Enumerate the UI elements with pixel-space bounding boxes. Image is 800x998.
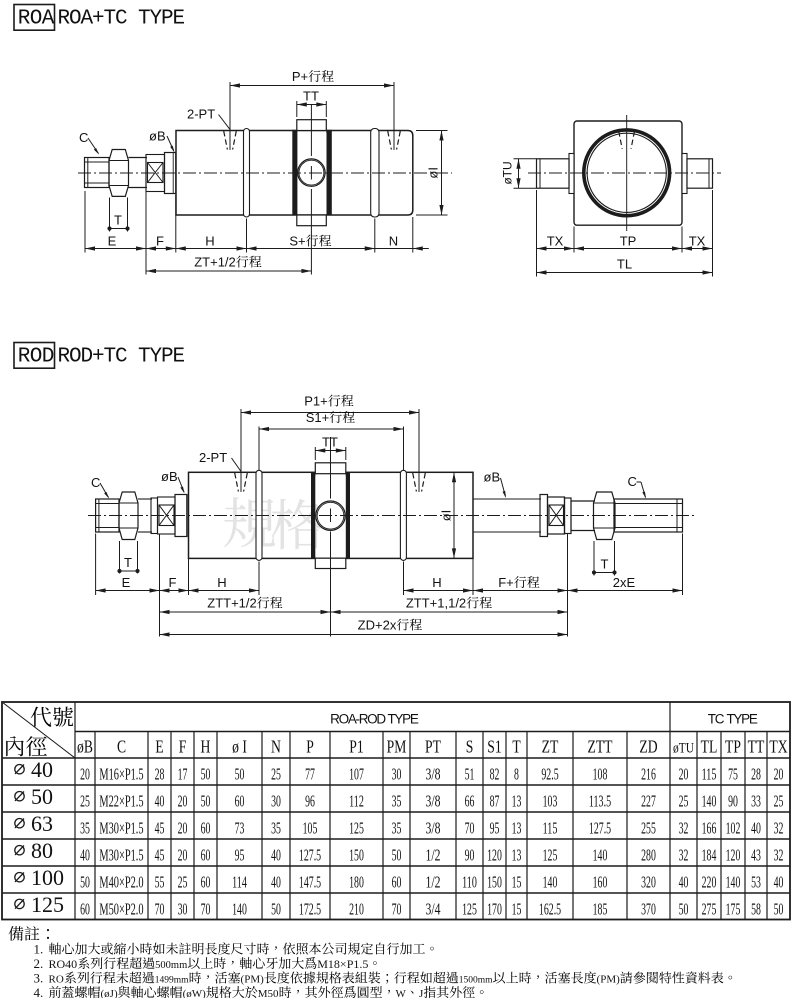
svg-text:40: 40 <box>751 819 761 838</box>
svg-text:TL: TL <box>617 257 632 272</box>
svg-text:172.5: 172.5 <box>299 899 321 918</box>
svg-text:E: E <box>108 234 117 249</box>
svg-text:82: 82 <box>490 765 500 784</box>
svg-text:øB: øB <box>484 470 501 485</box>
svg-text:35: 35 <box>392 819 402 838</box>
svg-text:90: 90 <box>728 792 738 811</box>
svg-text:35: 35 <box>271 819 281 838</box>
svg-text:210: 210 <box>349 899 364 918</box>
svg-text:I: I <box>439 510 454 514</box>
svg-text:103: 103 <box>543 792 558 811</box>
svg-text:140: 140 <box>232 899 247 918</box>
svg-text:ROD+TC TYPE: ROD+TC TYPE <box>58 345 185 368</box>
svg-text:73: 73 <box>235 819 245 838</box>
svg-text:PM: PM <box>387 736 407 756</box>
svg-text:50: 50 <box>235 765 245 784</box>
svg-text:33: 33 <box>751 792 761 811</box>
svg-text:TYPE: TYPE <box>387 712 418 727</box>
svg-text:320: 320 <box>641 873 656 892</box>
svg-text:113.5: 113.5 <box>589 792 611 811</box>
svg-text:TT: TT <box>748 736 765 756</box>
svg-text:C: C <box>117 736 126 756</box>
svg-text:ZTT: ZTT <box>588 736 613 756</box>
svg-text:N: N <box>271 736 281 756</box>
svg-text:P1: P1 <box>349 736 363 756</box>
svg-text:(øJ): (øJ) <box>101 988 118 998</box>
svg-text:370: 370 <box>641 899 656 918</box>
svg-text:TP: TP <box>725 736 741 756</box>
svg-text:H: H <box>205 234 214 249</box>
svg-text:T: T <box>124 555 132 570</box>
svg-text:M50: M50 <box>258 988 279 998</box>
svg-text:25: 25 <box>271 765 281 784</box>
svg-text:ZT: ZT <box>542 736 559 756</box>
svg-text:T: T <box>512 736 521 756</box>
svg-text:90: 90 <box>465 846 475 865</box>
svg-text:I: I <box>426 167 441 171</box>
svg-text:102: 102 <box>726 819 741 838</box>
svg-text:20: 20 <box>774 765 784 784</box>
svg-text:TL: TL <box>701 736 718 756</box>
svg-text:120: 120 <box>726 846 741 865</box>
svg-text:25: 25 <box>178 873 188 892</box>
svg-text:160: 160 <box>593 873 608 892</box>
svg-text:127.5: 127.5 <box>589 819 611 838</box>
svg-text:30: 30 <box>178 899 188 918</box>
svg-text:125: 125 <box>543 846 558 865</box>
svg-text:C: C <box>79 130 88 145</box>
svg-text:M30×P1.5: M30×P1.5 <box>99 819 143 838</box>
svg-text:80: 80 <box>31 838 53 863</box>
svg-text:112: 112 <box>349 792 364 811</box>
svg-text:107: 107 <box>349 765 364 784</box>
svg-text:30: 30 <box>392 765 402 784</box>
svg-text:H: H <box>217 575 226 590</box>
svg-text:60: 60 <box>80 899 90 918</box>
svg-text:TP: TP <box>620 234 637 249</box>
svg-text:70: 70 <box>155 899 165 918</box>
svg-text:66: 66 <box>465 792 475 811</box>
svg-text:2xE: 2xE <box>613 575 636 590</box>
svg-text:øB: øB <box>77 736 93 756</box>
svg-text:ZT+1/2: ZT+1/2 <box>194 255 236 270</box>
svg-text:20: 20 <box>178 846 188 865</box>
svg-text:ø I: ø I <box>232 736 247 756</box>
svg-text:ZTT+1/2: ZTT+1/2 <box>207 596 257 611</box>
svg-text:147.5: 147.5 <box>299 873 321 892</box>
svg-text:13: 13 <box>512 846 522 865</box>
svg-text:F: F <box>156 234 164 249</box>
svg-text:45: 45 <box>155 819 165 838</box>
svg-text:15: 15 <box>512 899 522 918</box>
svg-text:255: 255 <box>641 819 656 838</box>
svg-text:32: 32 <box>774 819 784 838</box>
svg-text:115: 115 <box>543 819 558 838</box>
svg-text:1/2: 1/2 <box>426 846 441 865</box>
svg-text:øB: øB <box>161 469 178 484</box>
svg-text:87: 87 <box>490 792 500 811</box>
svg-text:166: 166 <box>702 819 717 838</box>
svg-text:(øW): (øW) <box>183 988 207 998</box>
svg-text:32: 32 <box>774 846 784 865</box>
svg-text:50: 50 <box>201 792 211 811</box>
svg-text:100: 100 <box>31 865 64 890</box>
svg-text:50: 50 <box>80 873 90 892</box>
svg-text:15: 15 <box>512 873 522 892</box>
svg-text:50: 50 <box>774 899 784 918</box>
svg-text:500mm: 500mm <box>155 960 187 971</box>
svg-text:63: 63 <box>31 811 53 836</box>
svg-text:40: 40 <box>679 873 689 892</box>
svg-text:3/8: 3/8 <box>426 792 441 811</box>
svg-text:35: 35 <box>392 792 402 811</box>
svg-text:PT: PT <box>425 736 441 756</box>
svg-text:60: 60 <box>201 846 211 865</box>
svg-text:ROD: ROD <box>18 345 54 368</box>
svg-text:125: 125 <box>462 899 477 918</box>
svg-text:175: 175 <box>726 899 741 918</box>
svg-text:45: 45 <box>155 846 165 865</box>
svg-text:51: 51 <box>465 765 475 784</box>
svg-text:øB: øB <box>149 129 166 144</box>
svg-text:125: 125 <box>349 819 364 838</box>
svg-text:ø: ø <box>439 513 454 521</box>
svg-text:3/8: 3/8 <box>426 819 441 838</box>
svg-text:280: 280 <box>641 846 656 865</box>
svg-text:M18×P1.5: M18×P1.5 <box>317 957 368 971</box>
svg-text:RO40: RO40 <box>49 957 78 971</box>
svg-text:TX: TX <box>547 234 564 249</box>
svg-text:P+: P+ <box>292 69 308 84</box>
svg-text:25: 25 <box>679 792 689 811</box>
svg-text:M50×P2.0: M50×P2.0 <box>99 899 143 918</box>
svg-text:40: 40 <box>31 757 53 782</box>
svg-text:TYPE: TYPE <box>726 712 757 727</box>
svg-text:95: 95 <box>490 819 500 838</box>
svg-text:4.: 4. <box>34 985 44 998</box>
svg-text:58: 58 <box>751 899 761 918</box>
svg-text:50: 50 <box>679 899 689 918</box>
svg-text:162.5: 162.5 <box>539 899 561 918</box>
svg-text:50: 50 <box>201 765 211 784</box>
svg-text:25: 25 <box>774 792 784 811</box>
svg-text:F: F <box>169 575 177 590</box>
svg-text:TX: TX <box>769 736 787 756</box>
svg-text:220: 220 <box>702 873 717 892</box>
svg-text:50: 50 <box>271 899 281 918</box>
svg-text:17: 17 <box>178 765 188 784</box>
svg-text:170: 170 <box>487 899 502 918</box>
svg-text:M40×P2.0: M40×P2.0 <box>99 873 143 892</box>
svg-text:H: H <box>432 575 441 590</box>
svg-text:140: 140 <box>593 846 608 865</box>
svg-text:M30×P1.5: M30×P1.5 <box>99 846 143 865</box>
svg-text:S1: S1 <box>487 736 501 756</box>
svg-text:127.5: 127.5 <box>299 846 321 865</box>
svg-text:60: 60 <box>201 873 211 892</box>
svg-text:TC: TC <box>708 712 725 727</box>
svg-text:20: 20 <box>679 765 689 784</box>
svg-text:ZD: ZD <box>639 736 657 756</box>
svg-text:25: 25 <box>80 792 90 811</box>
svg-text:2.: 2. <box>34 956 44 971</box>
svg-text:60: 60 <box>201 819 211 838</box>
svg-text:40: 40 <box>774 873 784 892</box>
svg-text:140: 140 <box>543 873 558 892</box>
svg-text:E: E <box>155 736 163 756</box>
svg-text:C: C <box>91 475 100 490</box>
svg-text:ø: ø <box>426 171 441 179</box>
svg-text:13: 13 <box>512 819 522 838</box>
svg-text:32: 32 <box>679 819 689 838</box>
svg-text:3/4: 3/4 <box>426 899 441 918</box>
svg-text:W: W <box>396 988 407 998</box>
svg-text:øTU: øTU <box>673 740 694 756</box>
svg-text:3/8: 3/8 <box>426 765 441 784</box>
svg-text:1/2: 1/2 <box>426 873 441 892</box>
svg-text:T: T <box>601 557 609 572</box>
svg-text:30: 30 <box>271 792 281 811</box>
svg-text:95: 95 <box>235 846 245 865</box>
svg-text:J: J <box>419 988 424 998</box>
svg-text:40: 40 <box>271 846 281 865</box>
svg-text:3.: 3. <box>34 971 44 986</box>
svg-text:20: 20 <box>178 792 188 811</box>
svg-text:70: 70 <box>392 899 402 918</box>
svg-text:28: 28 <box>751 765 761 784</box>
svg-text:55: 55 <box>155 873 165 892</box>
svg-text:(PM): (PM) <box>597 974 621 986</box>
svg-text:1500mm: 1500mm <box>459 976 493 986</box>
svg-text:216: 216 <box>641 765 656 784</box>
svg-text:75: 75 <box>728 765 738 784</box>
svg-text:1499mm: 1499mm <box>155 976 189 986</box>
svg-text:TT: TT <box>322 435 338 450</box>
svg-text:P: P <box>306 736 314 756</box>
svg-text:C: C <box>628 474 637 489</box>
svg-text:S: S <box>466 736 474 756</box>
svg-text:35: 35 <box>80 819 90 838</box>
svg-text:50: 50 <box>31 784 53 809</box>
svg-text:F+: F+ <box>498 575 514 590</box>
svg-text:28: 28 <box>155 765 165 784</box>
svg-text:114: 114 <box>232 873 247 892</box>
svg-text:20: 20 <box>178 819 188 838</box>
svg-text:50: 50 <box>392 846 402 865</box>
svg-text:92.5: 92.5 <box>541 765 558 784</box>
svg-text:180: 180 <box>349 873 364 892</box>
svg-text:43: 43 <box>751 846 761 865</box>
svg-text:32: 32 <box>679 846 689 865</box>
svg-text:TU: TU <box>501 161 515 177</box>
svg-text:TX: TX <box>689 234 706 249</box>
svg-text:P1+: P1+ <box>304 394 328 409</box>
svg-text:2-PT: 2-PT <box>199 450 227 465</box>
svg-text:70: 70 <box>465 819 475 838</box>
svg-text:115: 115 <box>702 765 717 784</box>
svg-text:108: 108 <box>593 765 608 784</box>
svg-text:275: 275 <box>702 899 717 918</box>
svg-text:H: H <box>201 736 211 756</box>
svg-text:E: E <box>122 575 131 590</box>
svg-text:ZTT+1,1/2: ZTT+1,1/2 <box>406 596 466 611</box>
svg-text:S+: S+ <box>289 234 305 249</box>
svg-text:60: 60 <box>235 792 245 811</box>
svg-text:ROA+TC TYPE: ROA+TC TYPE <box>58 8 185 31</box>
svg-text:140: 140 <box>726 873 741 892</box>
svg-text:ZD+2x: ZD+2x <box>358 618 397 633</box>
svg-text:53: 53 <box>751 873 761 892</box>
svg-text:110: 110 <box>462 873 477 892</box>
svg-text:20: 20 <box>80 765 90 784</box>
svg-text:150: 150 <box>487 873 502 892</box>
svg-text:8: 8 <box>514 765 519 784</box>
svg-text:M22×P1.5: M22×P1.5 <box>99 792 143 811</box>
svg-text:96: 96 <box>305 792 315 811</box>
svg-text:S1+: S1+ <box>306 410 330 425</box>
svg-text:77: 77 <box>305 765 315 784</box>
svg-text:2-PT: 2-PT <box>187 107 215 122</box>
svg-text:13: 13 <box>512 792 522 811</box>
svg-text:120: 120 <box>487 846 502 865</box>
svg-text:M16×P1.5: M16×P1.5 <box>99 765 143 784</box>
svg-text:N: N <box>389 234 398 249</box>
svg-text:40: 40 <box>271 873 281 892</box>
svg-text:RO: RO <box>49 974 64 986</box>
svg-text:T: T <box>114 213 122 228</box>
svg-text:184: 184 <box>702 846 717 865</box>
svg-text:125: 125 <box>31 892 64 917</box>
svg-text:185: 185 <box>593 899 608 918</box>
svg-text:TT: TT <box>303 89 319 104</box>
svg-text:70: 70 <box>201 899 211 918</box>
svg-text:1.: 1. <box>34 942 44 957</box>
svg-text:150: 150 <box>349 846 364 865</box>
svg-text:40: 40 <box>80 846 90 865</box>
svg-text:(PM): (PM) <box>241 974 265 986</box>
svg-text:60: 60 <box>392 873 402 892</box>
svg-text:ROA-ROD: ROA-ROD <box>330 712 386 727</box>
svg-text:140: 140 <box>702 792 717 811</box>
svg-text:227: 227 <box>641 792 656 811</box>
svg-text:ROA: ROA <box>18 8 55 31</box>
svg-text:105: 105 <box>303 819 318 838</box>
svg-text:40: 40 <box>155 792 165 811</box>
svg-text:F: F <box>179 736 187 756</box>
